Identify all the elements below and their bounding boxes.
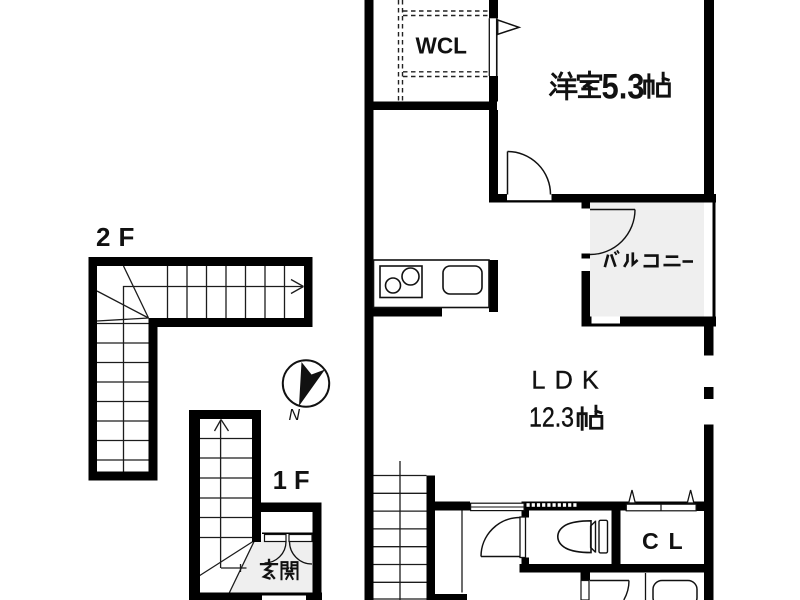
svg-text:CL: CL <box>642 528 692 554</box>
svg-text:1F: 1F <box>273 467 317 495</box>
svg-text:12.3: 12.3 <box>529 402 574 433</box>
svg-text:LDK: LDK <box>532 367 609 395</box>
svg-text:N: N <box>289 407 301 424</box>
svg-text:5.3: 5.3 <box>602 67 645 106</box>
svg-text:WCL: WCL <box>416 33 468 59</box>
svg-text:2F: 2F <box>96 222 142 252</box>
